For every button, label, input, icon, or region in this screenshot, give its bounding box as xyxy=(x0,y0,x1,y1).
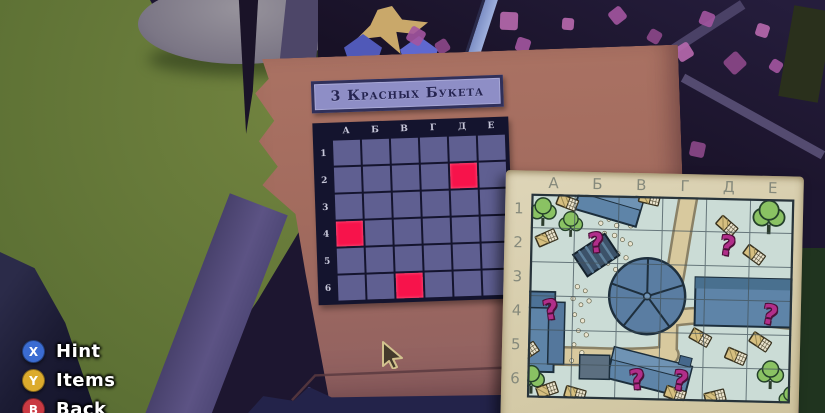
sign-cell-Е1[interactable] xyxy=(478,135,506,161)
flower-petal xyxy=(646,28,664,46)
hint-button[interactable]: X Hint xyxy=(22,340,115,363)
back-label: Back xyxy=(56,399,107,413)
map-row-label: 4 xyxy=(512,301,522,319)
sign-title-plaque: 3 Красных Букета xyxy=(311,75,504,114)
controller-b-icon: B xyxy=(22,398,45,413)
sign-cell-А6[interactable] xyxy=(338,275,366,301)
map-question-mark-Б2: ? xyxy=(586,227,605,260)
sign-title: 3 Красных Букета xyxy=(330,83,484,104)
town-map-illustration xyxy=(527,194,795,404)
grid-col-header: А xyxy=(332,124,359,139)
flower-petal xyxy=(607,5,628,26)
sign-cell-Г2[interactable] xyxy=(421,164,449,190)
back-button[interactable]: B Back xyxy=(22,398,115,413)
controller-x-icon: X xyxy=(22,340,45,363)
grid-row-header: 6 xyxy=(320,276,337,302)
map-row-label: 6 xyxy=(510,369,520,387)
sign-cell-А5[interactable] xyxy=(337,248,365,274)
sign-cell-Б2[interactable] xyxy=(363,166,391,192)
flower-petal xyxy=(500,12,519,31)
sign-cell-Б5[interactable] xyxy=(366,247,394,273)
items-label: Items xyxy=(56,370,115,391)
button-legend: X Hint Y Items B Back xyxy=(22,340,115,413)
flower-petal xyxy=(562,18,575,31)
sign-grid: АБВГДЕ123456 xyxy=(312,117,514,306)
y-key-label: Y xyxy=(29,374,38,388)
map-row-label: 1 xyxy=(514,199,524,217)
map-grid: ?????? xyxy=(527,194,795,404)
x-key-label: X xyxy=(29,345,38,359)
grid-row-header: 4 xyxy=(318,222,335,248)
grid-col-header: Г xyxy=(419,121,446,136)
grid-corner xyxy=(314,125,330,140)
flower-petal xyxy=(722,50,747,75)
sign-cell-Д4[interactable] xyxy=(452,217,480,243)
controller-y-icon: Y xyxy=(22,369,45,392)
grid-row-header: 2 xyxy=(316,168,333,194)
sign-cell-В4[interactable] xyxy=(394,219,422,245)
sign-cell-Д5[interactable] xyxy=(453,244,481,270)
grid-row-header: 1 xyxy=(315,141,332,167)
sign-cell-Д3[interactable] xyxy=(451,190,479,216)
map-row-label: 2 xyxy=(513,233,523,251)
grid-col-header: Д xyxy=(448,120,475,135)
sign-cell-В1[interactable] xyxy=(391,138,419,164)
items-button[interactable]: Y Items xyxy=(22,369,115,392)
dark-foliage xyxy=(778,5,825,103)
map-col-label: А xyxy=(548,174,559,192)
sign-cell-Б3[interactable] xyxy=(364,193,392,219)
mouse-cursor xyxy=(381,341,405,369)
flower-petal xyxy=(689,141,707,159)
map-col-label: В xyxy=(636,176,647,194)
grid-col-header: Е xyxy=(477,119,504,134)
sign-cell-Е2[interactable] xyxy=(479,162,507,188)
sign-cell-А1[interactable] xyxy=(333,140,361,166)
bush-shadow xyxy=(799,248,825,413)
map-col-label: Д xyxy=(723,178,735,196)
hint-label: Hint xyxy=(56,341,101,362)
map-row-label: 3 xyxy=(512,267,522,285)
grid-col-header: Б xyxy=(361,123,388,138)
sign-cell-Д2[interactable] xyxy=(450,163,478,189)
map-col-label: Б xyxy=(592,175,603,193)
town-map: ?????? АБВГДЕ123456 xyxy=(500,170,804,413)
sign-cell-А4[interactable] xyxy=(336,221,364,247)
grid-row-header: 3 xyxy=(317,195,334,221)
sign-cell-В5[interactable] xyxy=(395,246,423,272)
sign-cell-Г6[interactable] xyxy=(425,272,453,298)
sign-cell-Е3[interactable] xyxy=(480,189,508,215)
grid-row-header: 5 xyxy=(319,249,336,275)
sign-cell-В2[interactable] xyxy=(392,165,420,191)
sign-cell-А3[interactable] xyxy=(335,194,363,220)
sign-cell-Г4[interactable] xyxy=(423,218,451,244)
sign-cell-Б4[interactable] xyxy=(365,220,393,246)
sign-cell-Б6[interactable] xyxy=(367,274,395,300)
game-screen: 3 Красных Букета АБВГДЕ123456 xyxy=(0,0,825,413)
sign-cell-Б1[interactable] xyxy=(362,139,390,165)
sign-cell-Д6[interactable] xyxy=(454,271,482,297)
sign-cell-Г5[interactable] xyxy=(424,245,452,271)
sign-cell-Д1[interactable] xyxy=(449,136,477,162)
map-col-label: Е xyxy=(768,179,778,197)
sign-cell-Г3[interactable] xyxy=(422,191,450,217)
map-row-label: 5 xyxy=(511,335,521,353)
map-col-label: Г xyxy=(680,177,690,195)
sign-cell-В3[interactable] xyxy=(393,192,421,218)
sign-cell-Г1[interactable] xyxy=(420,137,448,163)
sign-cell-В6[interactable] xyxy=(396,273,424,299)
grid-col-header: В xyxy=(390,122,417,137)
flower-petal xyxy=(754,22,770,38)
b-key-label: B xyxy=(29,403,38,413)
sign-cell-А2[interactable] xyxy=(334,167,362,193)
map-question-mark-В6: ? xyxy=(627,364,646,396)
